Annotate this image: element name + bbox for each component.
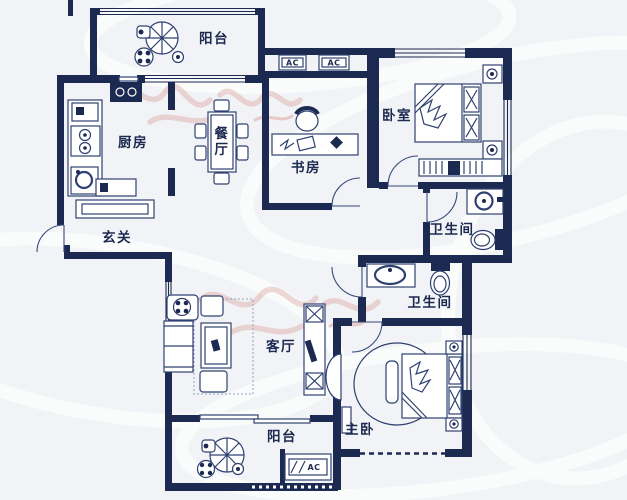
window-master-bottom bbox=[360, 450, 445, 457]
bath-upper-door bbox=[427, 192, 457, 222]
bath-lower-door bbox=[332, 267, 362, 297]
sliding-door-kitchen-balcony bbox=[119, 77, 138, 81]
room-label-bedroom: 卧室 bbox=[382, 107, 412, 124]
coffee-table-icon bbox=[201, 323, 231, 368]
sofa-icon bbox=[164, 321, 193, 372]
bath-lower-fixtures bbox=[367, 263, 450, 295]
bedroom-door bbox=[388, 156, 418, 186]
toilet-icon bbox=[471, 229, 503, 250]
sink-icon bbox=[467, 189, 504, 214]
room-label-entry: 玄关 bbox=[102, 229, 132, 246]
living-room-furniture bbox=[164, 295, 341, 400]
wardrobe-icon bbox=[419, 159, 502, 176]
nightstand-icon bbox=[446, 418, 462, 431]
nightstand-icon bbox=[483, 141, 502, 159]
ac-label-2: AC bbox=[327, 59, 340, 68]
armchair-icon bbox=[167, 295, 198, 320]
sink-icon bbox=[367, 264, 415, 287]
room-label-kitchen: 厨房 bbox=[118, 134, 148, 151]
floor-plan: AC AC bbox=[0, 0, 627, 500]
room-label-dining: 餐厅 bbox=[214, 125, 230, 158]
room-label-balcony-bottom: 阳台 bbox=[267, 428, 297, 445]
room-label-study: 书房 bbox=[291, 159, 321, 176]
nightstand-icon bbox=[483, 65, 502, 83]
tv-console-icon bbox=[304, 304, 325, 395]
ac-label-1: AC bbox=[286, 59, 299, 68]
ac-unit-bottom: AC bbox=[280, 449, 331, 483]
room-label-bath-upper: 卫生间 bbox=[430, 221, 475, 238]
room-label-living: 客厅 bbox=[265, 338, 296, 355]
room-label-balcony-top: 阳台 bbox=[199, 30, 229, 47]
study-door bbox=[332, 178, 360, 206]
ac-units-top: AC AC bbox=[279, 55, 349, 70]
toilet-icon bbox=[431, 263, 451, 295]
room-label-master: 主卧 bbox=[345, 421, 375, 438]
master-bed-icon bbox=[402, 354, 462, 418]
floor-plan-canvas: AC AC bbox=[0, 0, 627, 500]
ac-label-3: AC bbox=[307, 463, 320, 472]
room-label-bath-lower: 卫生间 bbox=[408, 294, 453, 311]
entry-cabinet-icon bbox=[76, 200, 154, 218]
balcony-bottom-table-icon bbox=[198, 438, 245, 478]
balcony-top-table-icon bbox=[135, 22, 184, 66]
nightstand-icon bbox=[446, 341, 462, 354]
